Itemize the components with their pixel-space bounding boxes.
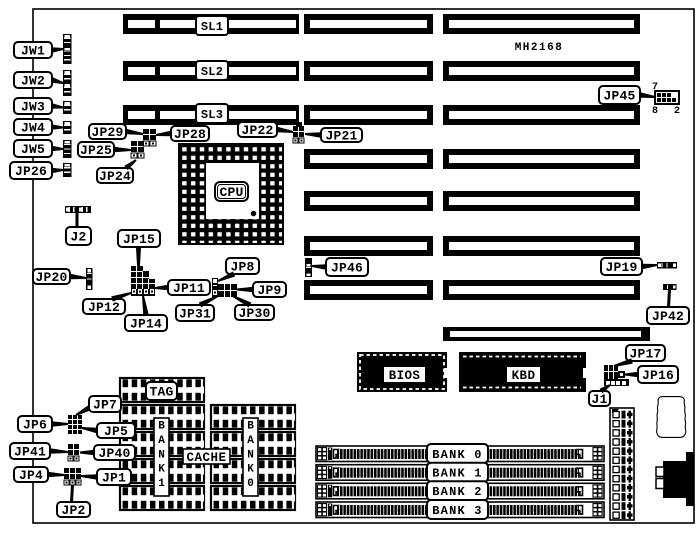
svg-text:BANK 0: BANK 0 (432, 448, 482, 462)
svg-text:JP22: JP22 (241, 123, 273, 138)
svg-text:JP8: JP8 (230, 260, 254, 275)
svg-text:A: A (158, 435, 165, 447)
svg-text:CPU: CPU (219, 185, 243, 200)
svg-text:JP21: JP21 (325, 129, 357, 144)
svg-text:8: 8 (652, 106, 658, 117)
svg-text:JW5: JW5 (21, 142, 45, 157)
svg-text:MH2168: MH2168 (515, 42, 564, 54)
svg-text:JW4: JW4 (21, 121, 45, 136)
svg-text:JP12: JP12 (88, 300, 120, 315)
svg-text:JP1: JP1 (102, 471, 126, 486)
svg-text:J2: J2 (70, 230, 86, 245)
svg-text:JP9: JP9 (257, 283, 281, 298)
svg-text:0: 0 (247, 478, 254, 490)
svg-text:BANK 3: BANK 3 (432, 504, 482, 518)
svg-text:JP5: JP5 (104, 424, 128, 439)
svg-text:KBD: KBD (512, 369, 536, 383)
svg-text:JP6: JP6 (23, 418, 47, 433)
svg-text:JP14: JP14 (130, 317, 162, 332)
svg-text:N: N (247, 449, 254, 461)
svg-text:JP30: JP30 (238, 306, 270, 321)
svg-text:BANK 1: BANK 1 (432, 467, 482, 481)
svg-text:JP2: JP2 (61, 503, 85, 518)
svg-text:JP29: JP29 (91, 125, 123, 140)
svg-text:JP42: JP42 (652, 309, 684, 324)
svg-text:SL1: SL1 (201, 20, 223, 34)
svg-text:JP28: JP28 (174, 127, 206, 142)
svg-text:JW2: JW2 (21, 74, 45, 89)
svg-text:B: B (158, 421, 165, 433)
svg-text:JP45: JP45 (603, 89, 635, 104)
svg-text:SL2: SL2 (201, 65, 223, 79)
svg-text:JP4: JP4 (19, 468, 43, 483)
svg-text:BIOS: BIOS (389, 369, 421, 383)
svg-text:JP16: JP16 (642, 368, 674, 383)
svg-text:CACHE: CACHE (186, 451, 226, 465)
svg-text:JP46: JP46 (331, 261, 363, 276)
svg-text:JP41: JP41 (14, 445, 46, 460)
svg-text:JP40: JP40 (98, 446, 130, 461)
svg-text:JP15: JP15 (123, 232, 155, 247)
svg-text:A: A (247, 435, 254, 447)
svg-text:N: N (158, 449, 165, 461)
svg-text:JW1: JW1 (21, 44, 45, 59)
svg-text:SL3: SL3 (201, 108, 223, 122)
svg-text:JW3: JW3 (21, 100, 45, 115)
svg-text:TAG: TAG (149, 385, 173, 400)
svg-text:JP20: JP20 (35, 270, 67, 285)
svg-text:JP17: JP17 (629, 347, 661, 362)
svg-text:JP11: JP11 (173, 281, 205, 296)
svg-text:B: B (247, 421, 254, 433)
svg-text:JP19: JP19 (605, 260, 637, 275)
svg-text:JP24: JP24 (99, 169, 131, 184)
svg-text:JP7: JP7 (93, 398, 117, 413)
svg-text:JP25: JP25 (80, 143, 112, 158)
svg-text:JP26: JP26 (15, 164, 47, 179)
svg-text:1: 1 (158, 478, 165, 490)
svg-text:J1: J1 (591, 392, 607, 407)
svg-text:7: 7 (652, 82, 658, 93)
svg-text:K: K (247, 464, 254, 476)
svg-text:K: K (158, 464, 165, 476)
svg-text:JP31: JP31 (179, 307, 211, 322)
svg-text:2: 2 (674, 106, 680, 117)
svg-text:BANK 2: BANK 2 (432, 485, 482, 499)
